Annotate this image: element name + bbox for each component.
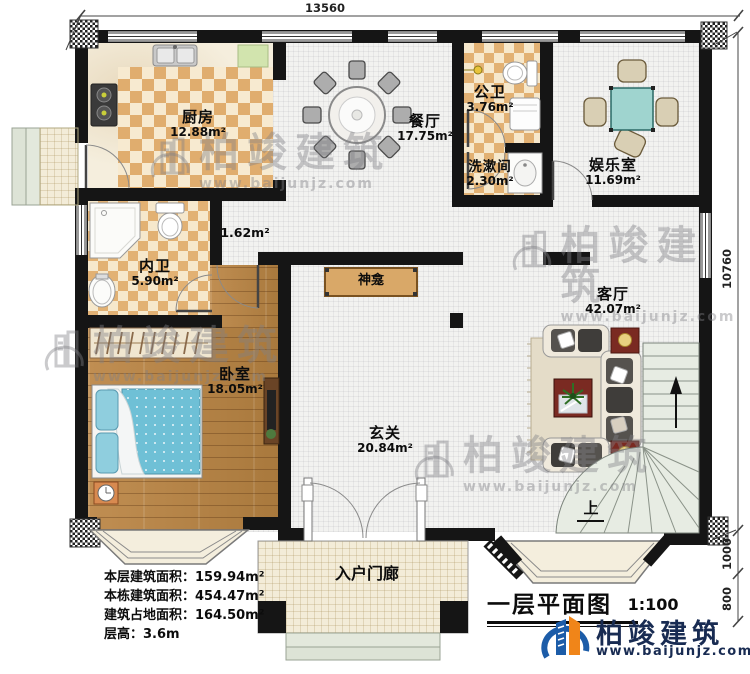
- living-bay-window: [487, 539, 668, 583]
- bed: [92, 385, 202, 478]
- porch-structure: [258, 541, 468, 660]
- brand-logo-icon: [539, 610, 591, 664]
- building-info-block: 本层建筑面积：159.94m² 本栋建筑面积：454.47m² 建筑占地面积：1…: [104, 569, 264, 644]
- dimension-right-mid: 1000: [720, 534, 734, 574]
- living-label: 客厅 42.07m²: [558, 286, 668, 316]
- entry-double-door: [302, 478, 427, 541]
- bedroom-door: [217, 265, 258, 308]
- entertainment-table-set: [584, 60, 678, 159]
- kitchen-label: 厨房 12.88m²: [143, 109, 253, 139]
- coffee-table: [554, 379, 592, 417]
- dimension-right-height: 10760: [720, 238, 734, 300]
- floor-plan-canvas: 柏竣建筑 www.baijunjz.com 柏竣建筑 www.baijunjz.…: [0, 0, 750, 674]
- private-bath-fixtures: [89, 203, 184, 307]
- info-row: 层高：3.6m: [104, 626, 264, 645]
- side-porch-steps: [12, 128, 78, 205]
- bedroom-bay-window: [90, 530, 248, 564]
- stairs-up-label: 上: [576, 500, 606, 517]
- corridor-area-label: 1.62m²: [200, 226, 290, 240]
- info-row: 建筑占地面积：164.50m²: [104, 607, 264, 626]
- private-bath-label: 内卫 5.90m²: [100, 258, 210, 288]
- brand-website: www.baijunjz.com: [596, 644, 750, 659]
- porch-label: 入户门廊: [297, 565, 437, 583]
- dining-label: 餐厅 17.75m²: [370, 113, 480, 143]
- washroom-label: 洗漱间 2.30m²: [435, 160, 545, 189]
- dimension-top-width: 13560: [295, 1, 355, 15]
- wardrobe: [90, 328, 212, 358]
- kitchen-side-door: [86, 145, 129, 188]
- bedroom-label: 卧室 18.05m²: [180, 366, 290, 396]
- foyer-label: 玄关 20.84m²: [330, 425, 440, 455]
- info-row: 本栋建筑面积：454.47m²: [104, 588, 264, 607]
- info-row: 本层建筑面积：159.94m²: [104, 569, 264, 588]
- bedside-table: [94, 482, 118, 504]
- shrine-label: 神龛: [326, 274, 416, 289]
- entertainment-label: 娱乐室 11.69m²: [558, 157, 668, 187]
- public-bath-label: 公卫 3.76m²: [435, 84, 545, 114]
